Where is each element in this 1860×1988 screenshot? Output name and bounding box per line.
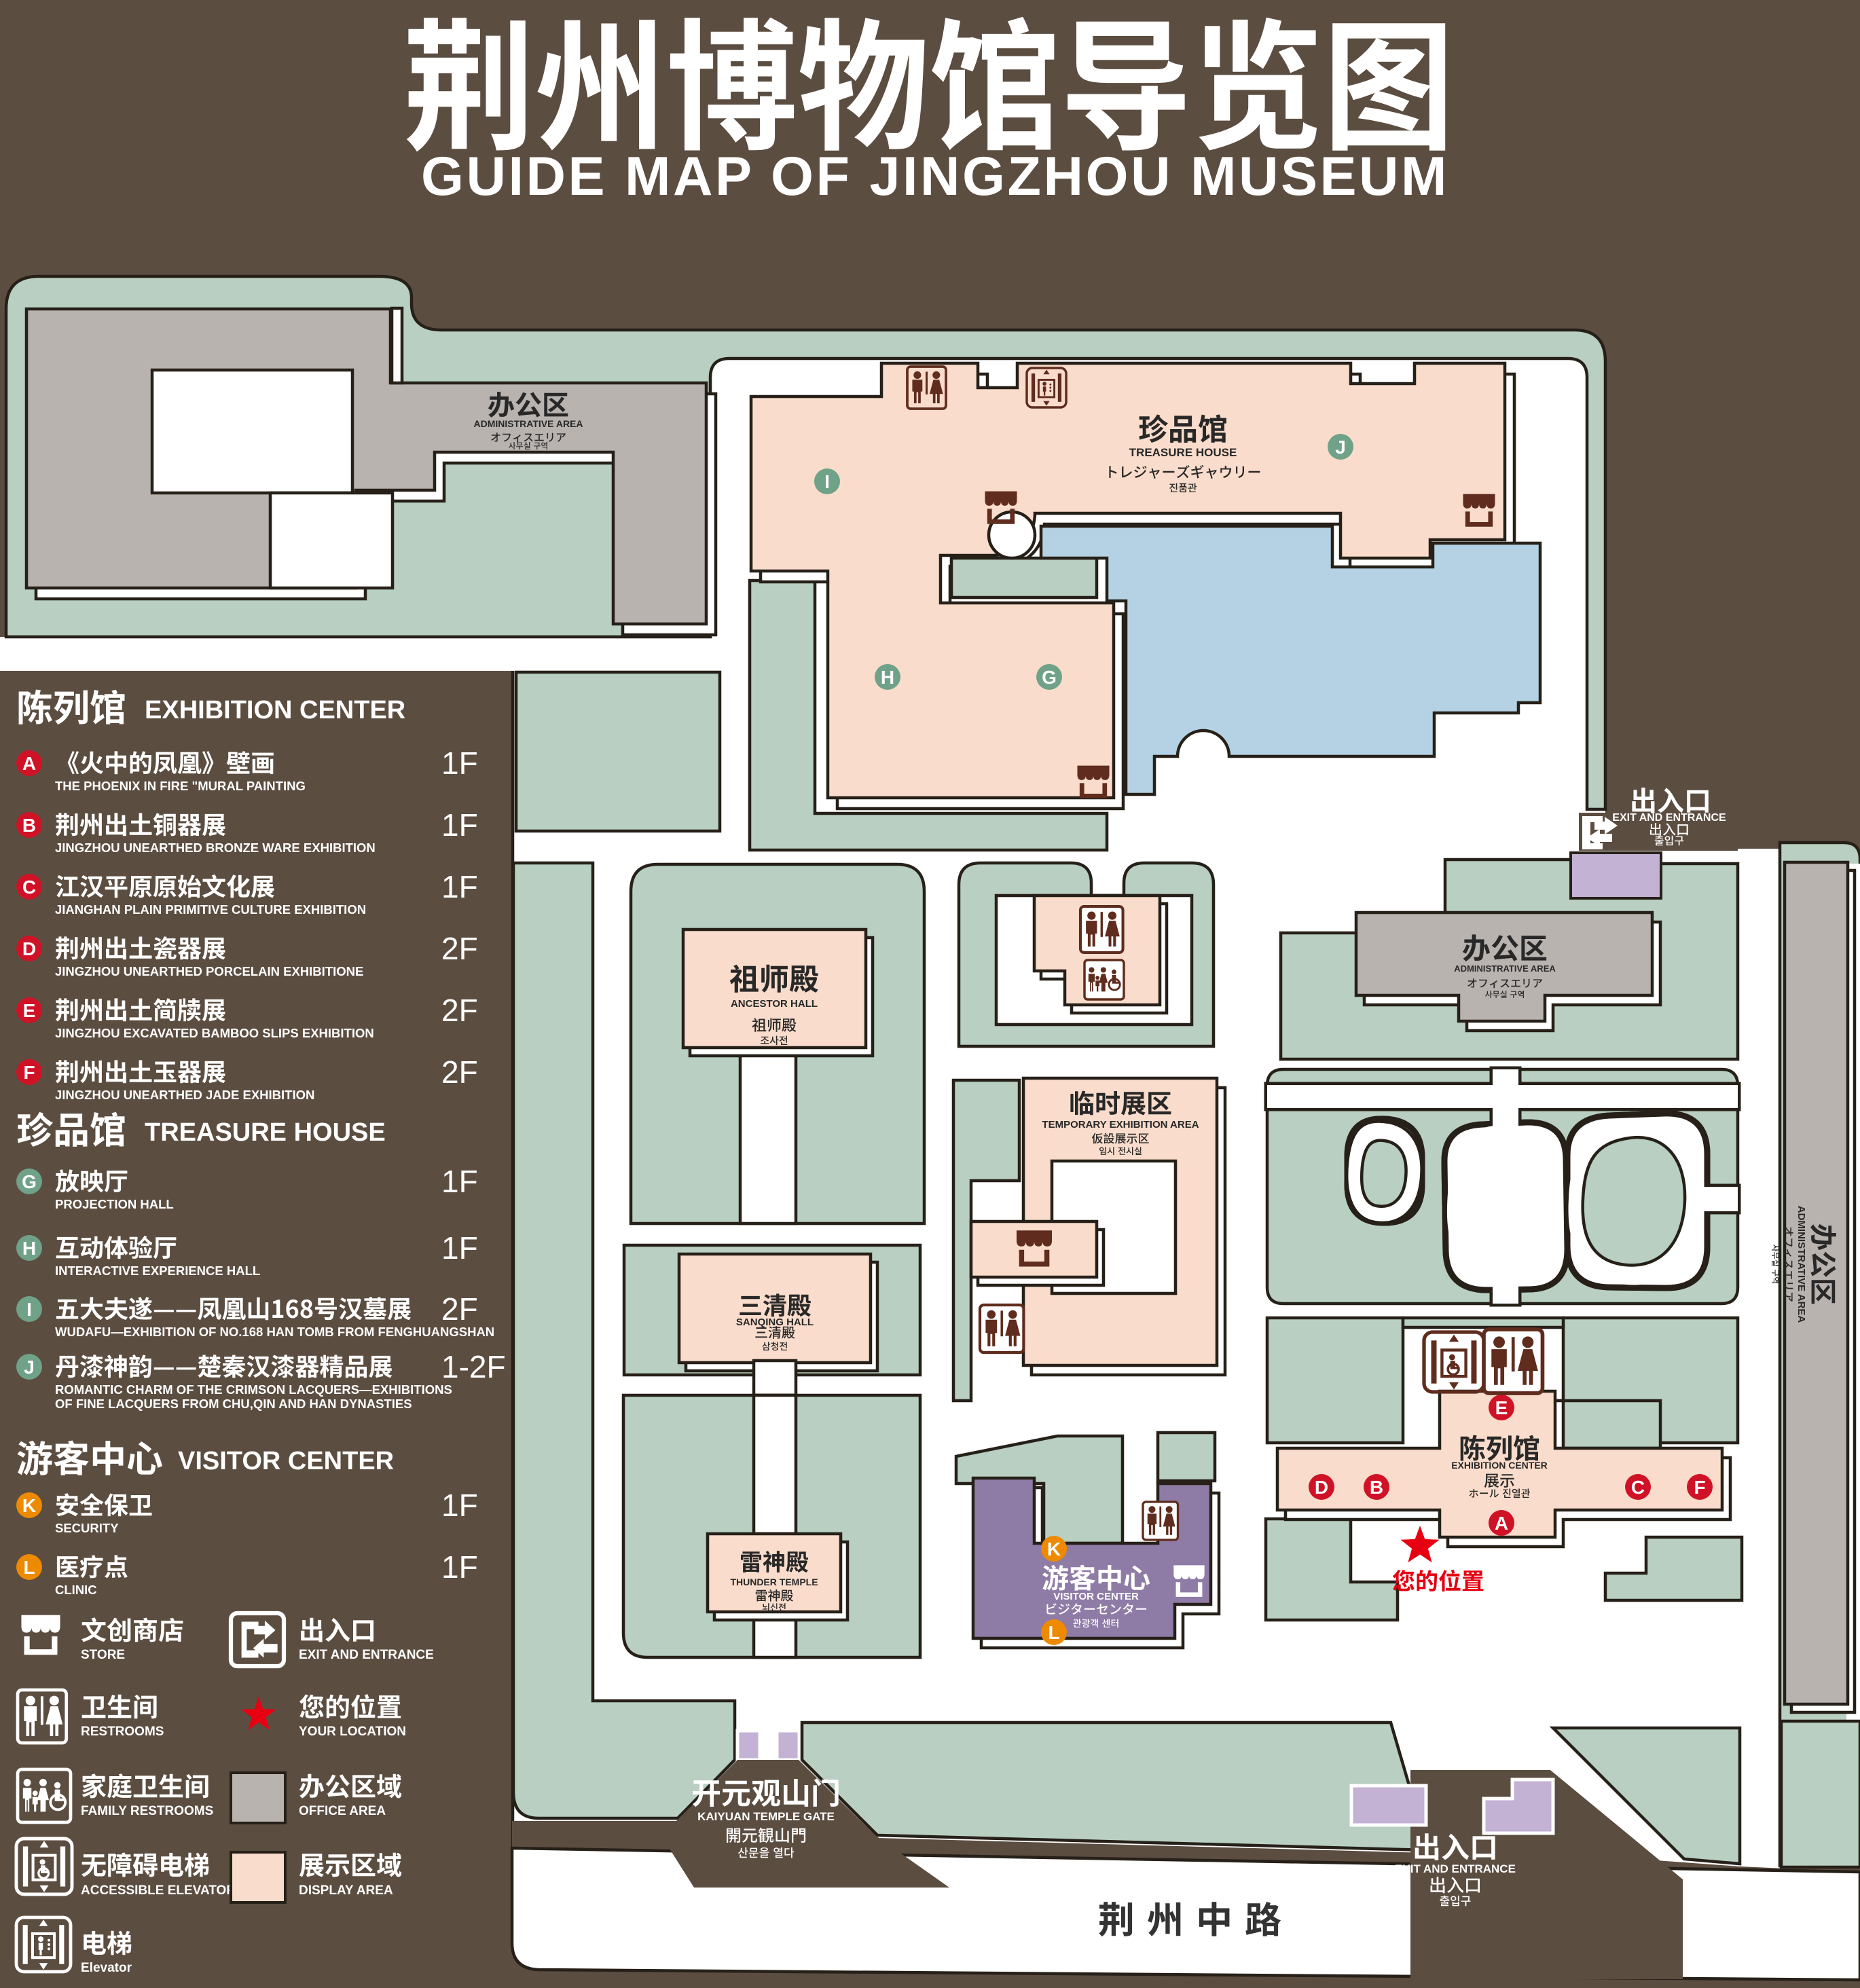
svg-text:A: A [22, 753, 36, 774]
svg-text:1F: 1F [441, 1230, 478, 1266]
svg-text:JINGZHOU EXCAVATED BAMBOO SLIP: JINGZHOU EXCAVATED BAMBOO SLIPS EXHIBITI… [55, 1026, 374, 1040]
svg-text:K: K [22, 1495, 36, 1516]
svg-text:B: B [1370, 1477, 1383, 1498]
svg-text:EXIT AND ENTRANCE: EXIT AND ENTRANCE [1395, 1862, 1516, 1875]
svg-text:1F: 1F [441, 807, 478, 843]
svg-text:CLINIC: CLINIC [55, 1583, 97, 1597]
svg-text:JINGZHOU UNEARTHED JADE EXHIBI: JINGZHOU UNEARTHED JADE EXHIBITION [55, 1088, 314, 1102]
svg-text:DISPLAY AREA: DISPLAY AREA [299, 1883, 393, 1898]
svg-text:SANQING HALL: SANQING HALL [736, 1317, 814, 1328]
svg-text:1F: 1F [441, 1488, 478, 1523]
svg-text:J: J [1335, 437, 1346, 458]
svg-text:KAIYUAN TEMPLE GATE: KAIYUAN TEMPLE GATE [697, 1810, 835, 1823]
svg-text:2F: 2F [441, 931, 478, 966]
svg-text:K: K [1047, 1539, 1061, 1560]
svg-text:FAMILY RESTROOMS: FAMILY RESTROOMS [81, 1804, 213, 1818]
svg-text:OF FINE LACQUERS FROM CHU,QIN: OF FINE LACQUERS FROM CHU,QIN AND HAN DY… [55, 1397, 412, 1411]
svg-text:F: F [1694, 1477, 1705, 1498]
svg-text:EXHIBITION CENTER: EXHIBITION CENTER [1451, 1460, 1548, 1471]
svg-text:C: C [1631, 1477, 1645, 1498]
svg-text:E: E [23, 1000, 36, 1021]
svg-text:TREASURE HOUSE: TREASURE HOUSE [1129, 446, 1237, 459]
svg-text:1-2F: 1-2F [441, 1349, 506, 1384]
svg-text:ADMINISTRATIVE AREA: ADMINISTRATIVE AREA [1795, 1206, 1807, 1323]
svg-text:INTERACTIVE EXPERIENCE HALL: INTERACTIVE EXPERIENCE HALL [55, 1264, 260, 1278]
svg-text:2F: 2F [441, 993, 478, 1028]
svg-text:EXHIBITION CENTER: EXHIBITION CENTER [145, 696, 405, 724]
svg-text:RESTROOMS: RESTROOMS [81, 1725, 164, 1739]
svg-text:GUIDE MAP OF JINGZHOU MUSEUM: GUIDE MAP OF JINGZHOU MUSEUM [421, 146, 1449, 207]
svg-text:JINGZHOU UNEARTHED BRONZE WARE: JINGZHOU UNEARTHED BRONZE WARE EXHIBITIO… [55, 841, 376, 855]
svg-text:WUDAFU—EXHIBITION OF NO.168 HA: WUDAFU—EXHIBITION OF NO.168 HAN TOMB FRO… [55, 1325, 494, 1339]
svg-text:2F: 2F [441, 1054, 478, 1090]
svg-text:EXIT AND ENTRANCE: EXIT AND ENTRANCE [299, 1648, 434, 1662]
svg-text:H: H [22, 1238, 36, 1259]
svg-text:THE PHOENIX IN FIRE "MURAL PAI: THE PHOENIX IN FIRE "MURAL PAINTING [55, 779, 306, 793]
svg-text:ANCESTOR HALL: ANCESTOR HALL [731, 998, 818, 1010]
svg-text:I: I [824, 471, 830, 492]
svg-text:L: L [23, 1557, 35, 1578]
svg-text:OFFICE AREA: OFFICE AREA [299, 1804, 386, 1818]
svg-text:TREASURE HOUSE: TREASURE HOUSE [145, 1118, 386, 1147]
svg-text:VISITOR CENTER: VISITOR CENTER [1053, 1591, 1139, 1602]
svg-text:I: I [26, 1299, 32, 1320]
svg-text:G: G [1042, 667, 1057, 688]
svg-text:TEMPORARY EXHIBITION AREA: TEMPORARY EXHIBITION AREA [1042, 1119, 1199, 1130]
svg-text:ACCESSIBLE ELEVATOR: ACCESSIBLE ELEVATOR [81, 1883, 236, 1898]
svg-text:L: L [1048, 1622, 1059, 1643]
svg-text:ADMINISTRATIVE AREA: ADMINISTRATIVE AREA [1454, 963, 1556, 974]
svg-text:1F: 1F [441, 1164, 478, 1199]
svg-text:ROMANTIC CHARM OF THE CRIMSON: ROMANTIC CHARM OF THE CRIMSON LACQUERS—E… [55, 1382, 452, 1397]
svg-text:ADMINISTRATIVE AREA: ADMINISTRATIVE AREA [474, 418, 583, 429]
svg-text:D: D [1315, 1477, 1328, 1498]
svg-text:VISITOR CENTER: VISITOR CENTER [178, 1447, 394, 1475]
svg-text:JIANGHAN PLAIN PRIMITIVE CULTU: JIANGHAN PLAIN PRIMITIVE CULTURE EXHIBIT… [55, 902, 366, 917]
svg-text:STORE: STORE [81, 1648, 125, 1662]
svg-text:F: F [23, 1062, 35, 1083]
svg-text:1F: 1F [441, 745, 478, 781]
svg-text:YOUR LOCATION: YOUR LOCATION [299, 1725, 406, 1739]
svg-text:EXIT AND ENTRANCE: EXIT AND ENTRANCE [1612, 812, 1726, 824]
svg-text:THUNDER TEMPLE: THUNDER TEMPLE [730, 1577, 818, 1587]
svg-text:2F: 2F [441, 1291, 478, 1327]
svg-text:D: D [22, 938, 36, 959]
svg-text:A: A [1495, 1513, 1508, 1534]
svg-text:B: B [22, 815, 36, 836]
svg-text:J: J [24, 1357, 35, 1378]
svg-text:1F: 1F [441, 1549, 478, 1585]
svg-text:H: H [881, 667, 894, 688]
svg-text:C: C [22, 877, 36, 898]
svg-text:1F: 1F [441, 869, 478, 904]
svg-text:G: G [22, 1171, 37, 1192]
svg-text:PROJECTION HALL: PROJECTION HALL [55, 1197, 174, 1211]
svg-text:Elevator: Elevator [81, 1961, 132, 1975]
svg-text:SECURITY: SECURITY [55, 1521, 119, 1535]
svg-text:JINGZHOU UNEARTHED PORCELAIN E: JINGZHOU UNEARTHED PORCELAIN EXHIBITIONE [55, 964, 363, 978]
svg-text:E: E [1495, 1397, 1508, 1418]
